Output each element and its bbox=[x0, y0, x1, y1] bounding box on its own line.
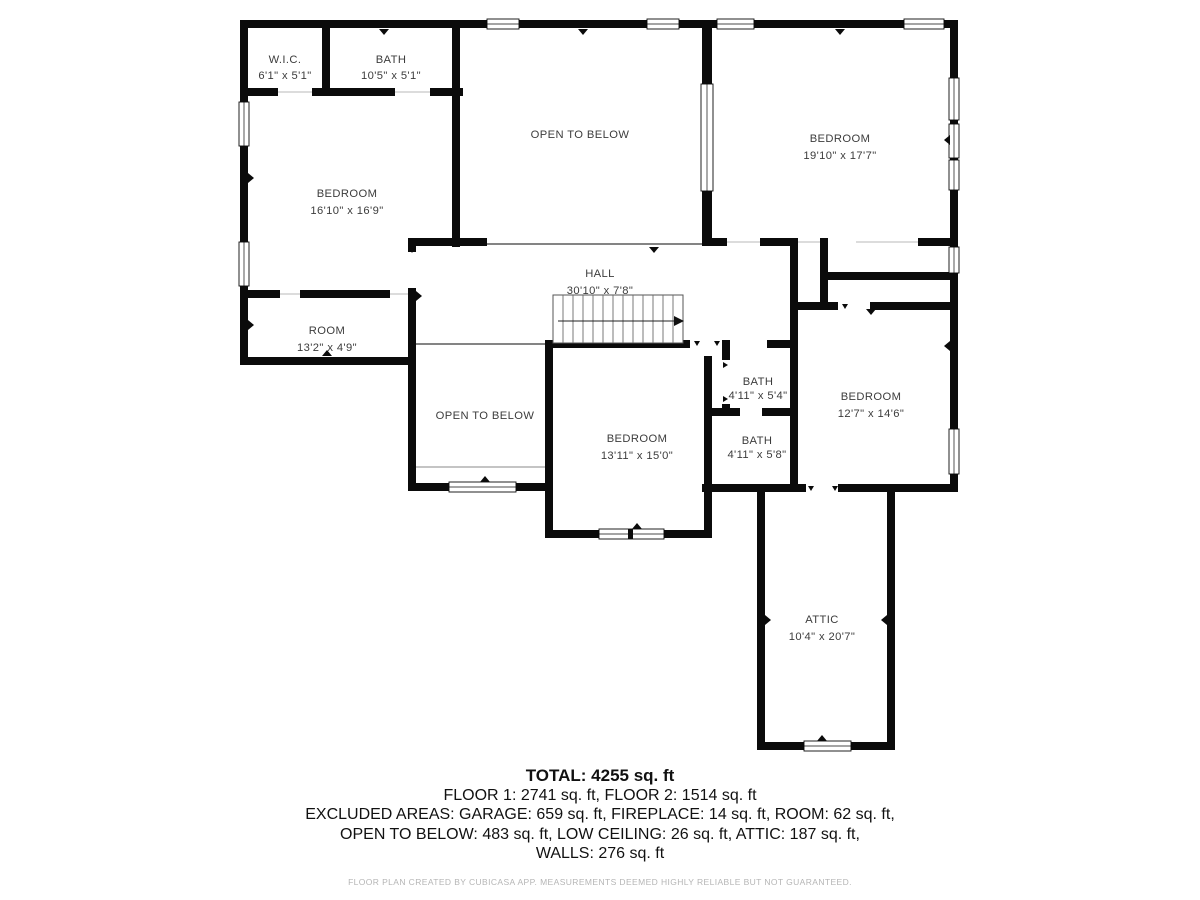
svg-text:13'11" x 15'0": 13'11" x 15'0" bbox=[601, 450, 673, 462]
floor-plan: W.I.C. 6'1" x 5'1" BATH 10'5" x 5'1" OPE… bbox=[0, 0, 1200, 760]
svg-text:ROOM: ROOM bbox=[309, 325, 345, 337]
svg-text:6'1" x 5'1": 6'1" x 5'1" bbox=[258, 70, 311, 82]
room-label-open-to-below-upper: OPEN TO BELOW bbox=[531, 129, 630, 141]
room-label-bedroom-left: BEDROOM 16'10" x 16'9" bbox=[310, 188, 383, 217]
svg-text:BEDROOM: BEDROOM bbox=[841, 391, 902, 403]
room-label-hall: HALL 30'10" x 7'8" bbox=[567, 268, 634, 297]
svg-text:BATH: BATH bbox=[742, 435, 773, 447]
svg-text:4'11" x 5'8": 4'11" x 5'8" bbox=[727, 449, 786, 461]
excluded-areas-line2: OPEN TO BELOW: 483 sq. ft, LOW CEILING: … bbox=[0, 825, 1200, 845]
room-labels: W.I.C. 6'1" x 5'1" BATH 10'5" x 5'1" OPE… bbox=[258, 54, 904, 643]
svg-text:BATH: BATH bbox=[376, 54, 407, 66]
room-label-bath-upper: BATH 4'11" x 5'4" bbox=[728, 376, 787, 402]
svg-text:10'5" x 5'1": 10'5" x 5'1" bbox=[361, 70, 421, 82]
room-label-bath-top: BATH 10'5" x 5'1" bbox=[361, 54, 421, 82]
floor-plan-page: W.I.C. 6'1" x 5'1" BATH 10'5" x 5'1" OPE… bbox=[0, 0, 1200, 900]
floors-area-text: FLOOR 1: 2741 sq. ft, FLOOR 2: 1514 sq. … bbox=[0, 786, 1200, 806]
room-label-attic: ATTIC 10'4" x 20'7" bbox=[789, 614, 856, 643]
room-label-room: ROOM 13'2" x 4'9" bbox=[297, 325, 357, 354]
svg-text:BATH: BATH bbox=[743, 376, 774, 388]
excluded-areas-line3: WALLS: 276 sq. ft bbox=[0, 844, 1200, 864]
excluded-areas-line1: EXCLUDED AREAS: GARAGE: 659 sq. ft, FIRE… bbox=[0, 805, 1200, 825]
svg-text:16'10" x 16'9": 16'10" x 16'9" bbox=[310, 205, 383, 217]
room-label-bedroom-top-right: BEDROOM 19'10" x 17'7" bbox=[803, 133, 876, 162]
room-label-open-to-below-lower: OPEN TO BELOW bbox=[436, 410, 535, 422]
svg-text:ATTIC: ATTIC bbox=[805, 614, 839, 626]
svg-text:W.I.C.: W.I.C. bbox=[269, 54, 302, 66]
staircase bbox=[553, 295, 684, 343]
room-label-bedroom-right: BEDROOM 12'7" x 14'6" bbox=[838, 391, 905, 420]
svg-text:BEDROOM: BEDROOM bbox=[317, 188, 378, 200]
svg-text:OPEN TO BELOW: OPEN TO BELOW bbox=[531, 129, 630, 141]
area-summary: TOTAL: 4255 sq. ft FLOOR 1: 2741 sq. ft,… bbox=[0, 766, 1200, 892]
room-label-bath-lower: BATH 4'11" x 5'8" bbox=[727, 435, 786, 461]
svg-text:13'2" x 4'9": 13'2" x 4'9" bbox=[297, 342, 357, 354]
svg-text:BEDROOM: BEDROOM bbox=[607, 433, 668, 445]
disclaimer-text: FLOOR PLAN CREATED BY CUBICASA APP. MEAS… bbox=[0, 873, 1200, 893]
svg-text:19'10" x 17'7": 19'10" x 17'7" bbox=[803, 150, 876, 162]
svg-text:10'4" x 20'7": 10'4" x 20'7" bbox=[789, 631, 856, 643]
total-area-text: TOTAL: 4255 sq. ft bbox=[0, 766, 1200, 786]
svg-text:OPEN TO BELOW: OPEN TO BELOW bbox=[436, 410, 535, 422]
svg-text:12'7" x 14'6": 12'7" x 14'6" bbox=[838, 408, 905, 420]
svg-text:HALL: HALL bbox=[585, 268, 615, 280]
room-label-bedroom-middle: BEDROOM 13'11" x 15'0" bbox=[601, 433, 673, 462]
room-label-wic: W.I.C. 6'1" x 5'1" bbox=[258, 54, 311, 82]
svg-text:BEDROOM: BEDROOM bbox=[810, 133, 871, 145]
svg-text:4'11" x 5'4": 4'11" x 5'4" bbox=[728, 390, 787, 402]
svg-text:30'10" x 7'8": 30'10" x 7'8" bbox=[567, 285, 634, 297]
